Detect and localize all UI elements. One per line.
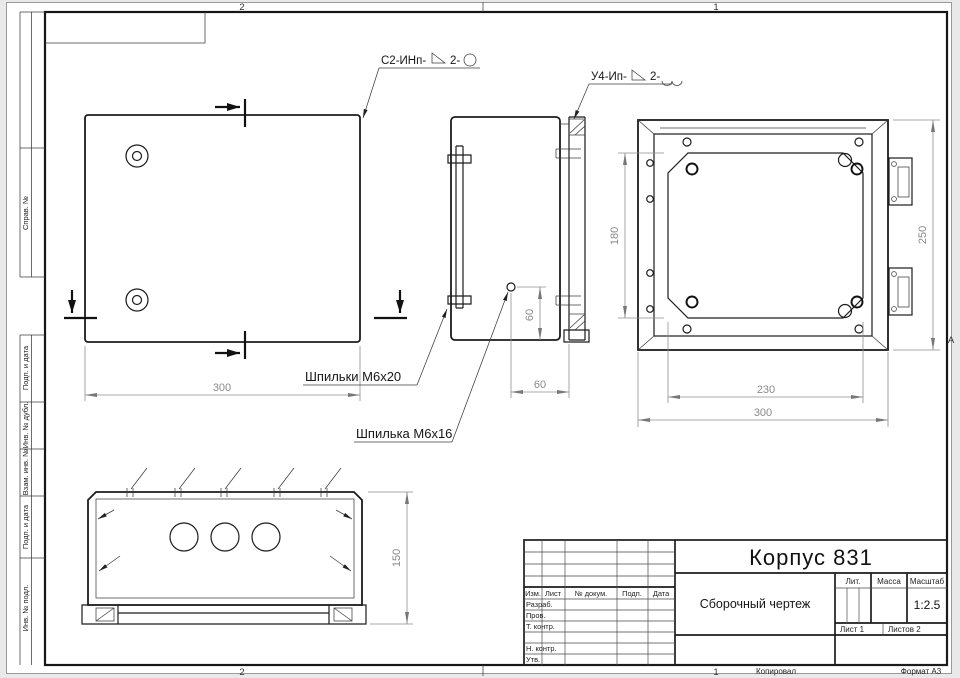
side-view: 60 60 [448,117,589,398]
hinge-boss-bottom [126,289,148,311]
mounting-plate [668,153,863,318]
stud-m6x16-label: Шпилька М6х16 [356,426,452,441]
dim-text-180: 180 [609,227,621,245]
col-izm-header: Изм. [525,589,541,598]
weld2-num: 2- [650,71,660,83]
dim-text-230: 230 [757,384,775,396]
gland-hole-1 [170,523,198,551]
scale-value: 1:2.5 [914,598,941,612]
masshtab-header: Масштаб [910,577,945,586]
bottom-rail [82,605,366,624]
col-list-header: Лист [545,589,562,598]
drawing-sheet-stage: 2 1 2 1 А Копировал Формат А3 Справ. № П… [0,0,960,678]
margin-vzam-inv: Взам. инв. № [21,449,30,495]
sheet-number: Лист 1 [840,625,865,634]
zone-top-right: 1 [713,2,718,13]
weld-triangle-icon [632,70,645,80]
frame-holes [647,138,863,333]
bottom-view: 150 [82,468,413,624]
dim-text-60-h: 60 [534,379,546,391]
row-nkontr-label: Н. контр. [526,644,557,653]
front-view: 300 [64,99,407,401]
margin-column-labels: Справ. № Подп. и дата Инв. № дубл. Взам.… [21,196,30,631]
weld-callout-1: С2-ИНп- 2- [363,53,480,118]
dim-depth: 150 [368,492,413,624]
studs-label-group: Шпильки М6х20 [303,309,447,385]
weld1-num: 2- [450,55,460,67]
lit-header: Лит. [846,577,861,586]
dim-plate-width: 230 [668,322,863,403]
zone-bottom-left: 2 [239,667,244,678]
weld-scallop-icon [662,81,682,86]
side-profile [556,117,589,342]
rear-view: 180 250 230 300 [609,120,940,427]
dim-text-150: 150 [391,549,403,567]
margin-inv-podl: Инв. № подл. [21,585,30,632]
zone-row-letter: А [948,335,955,346]
col-doc-header: № докум. [575,589,607,598]
weld1-code: С2-ИНп- [381,55,426,67]
dim-plate-height: 180 [609,153,664,318]
stud-point [507,283,515,291]
zone-top-left: 2 [239,2,244,13]
margin-podp-data-2: Подп. и дата [21,504,30,549]
dim-stud-vertical: 60 [517,287,546,340]
row-utv-label: Утв. [526,655,540,664]
zone-bottom-right: 1 [713,667,718,678]
dim-text-300-rear: 300 [754,407,772,419]
margin-sprav-no: Справ. № [21,196,30,230]
row-prov-label: Пров. [526,611,546,620]
studs-m6x20-label: Шпильки М6х20 [305,369,401,384]
stud-label-group: Шпилька М6х16 [354,292,508,442]
weld-triangle-icon [432,53,445,63]
plate-holes [687,154,863,318]
weld2-code: У4-Ип- [591,71,627,83]
hinge-bottom [889,268,912,315]
footer-format-label: Формат А3 [901,667,942,676]
col-podp-header: Подп. [622,589,642,598]
doc-type-label: Сборочный чертеж [700,597,811,611]
weld-callout-2: У4-Ип- 2- [574,70,682,119]
dim-text-300-front: 300 [213,382,231,394]
hinge-top [889,158,912,205]
footer-copied-label: Копировал [756,667,796,676]
gland-hole-2 [211,523,239,551]
col-data-header: Дата [653,589,670,598]
hinge-boss-top [126,145,148,167]
title-block: Изм. Лист № докум. Подп. Дата Разраб. Пр… [524,540,947,665]
drawing-canvas: 2 1 2 1 А Копировал Формат А3 Справ. № П… [0,0,960,678]
margin-inv-dubl: Инв. № дубл. [21,402,30,448]
massa-header: Масса [877,577,901,586]
weld-circle-icon [464,54,476,66]
part-title: Корпус 831 [749,545,873,570]
gland-hole-3 [252,523,280,551]
dim-text-250: 250 [917,226,929,244]
row-razrab-label: Разраб. [526,600,553,609]
row-tkontr-label: Т. контр. [526,622,555,631]
corner-weld-marks [98,510,352,571]
sheets-total: Листов 2 [888,625,921,634]
sheet-frame [20,2,947,676]
margin-podp-data-1: Подп. и дата [21,345,30,390]
dim-text-60-v: 60 [524,309,536,321]
section-marks [64,99,407,359]
